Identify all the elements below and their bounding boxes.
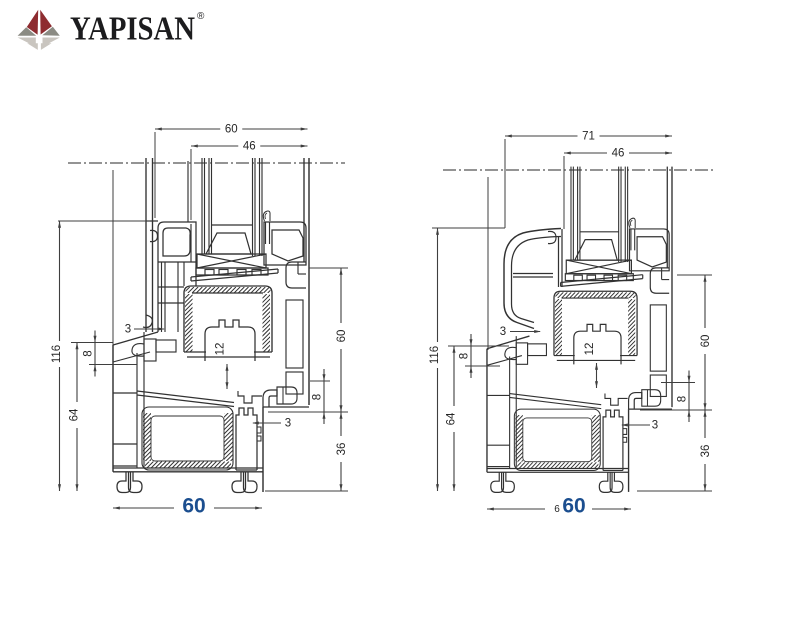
svg-text:116: 116 [429,346,441,364]
svg-text:3: 3 [285,418,291,430]
svg-text:60: 60 [562,495,585,518]
svg-text:3: 3 [125,324,131,336]
svg-text:12: 12 [215,343,227,356]
svg-text:116: 116 [51,345,63,363]
svg-text:8: 8 [459,353,471,359]
svg-text:3: 3 [500,326,506,338]
svg-text:®: ® [197,11,205,22]
svg-text:YAPISAN: YAPISAN [70,11,195,48]
svg-text:71: 71 [582,131,595,143]
svg-text:3: 3 [652,420,658,432]
svg-text:12: 12 [584,343,596,356]
svg-text:60: 60 [700,335,712,348]
svg-text:8: 8 [312,394,324,400]
svg-text:46: 46 [243,141,256,153]
svg-text:8: 8 [83,350,95,356]
svg-text:36: 36 [336,443,348,456]
svg-text:8: 8 [677,396,689,402]
svg-text:60: 60 [225,124,238,136]
svg-text:64: 64 [69,408,81,421]
svg-text:46: 46 [612,148,625,160]
svg-text:6: 6 [554,504,560,515]
svg-text:60: 60 [182,495,205,518]
svg-text:60: 60 [336,330,348,343]
svg-text:36: 36 [700,445,712,458]
svg-text:64: 64 [446,412,458,425]
